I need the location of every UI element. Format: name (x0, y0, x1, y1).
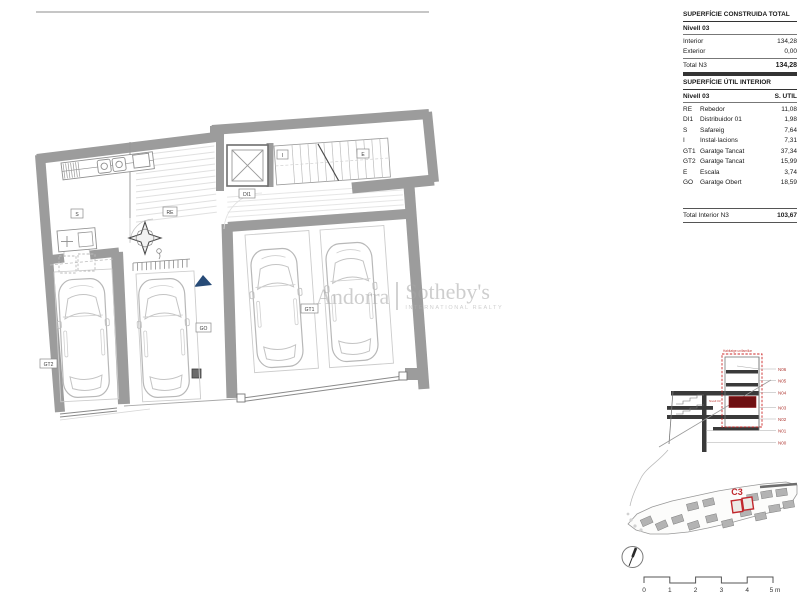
table-row: GO Garatge Obert 18,59 (683, 177, 797, 188)
row-interior-label: Interior (683, 37, 777, 46)
highlighted-floor-n3 (729, 397, 756, 408)
label-garatge-tancat-1: GT1 (305, 307, 315, 313)
table-row: E Escala 3,74 (683, 166, 797, 177)
scale-3: 3 (720, 587, 724, 594)
table2-title: SUPERFÍCIE ÚTIL INTERIOR (683, 78, 797, 90)
row-value: 37,34 (781, 147, 797, 156)
total-interior-label: Total Interior N3 (683, 212, 729, 219)
car-gt1-right (322, 241, 382, 362)
level-labels: N06 N05 N04 N03 N02 N01 N00 (778, 367, 787, 446)
laundry-fixtures (57, 228, 97, 273)
row-value: 3,74 (784, 168, 797, 177)
scale-bar: 0 1 2 3 4 5 m (642, 577, 780, 594)
row-name: Garatge Tancat (700, 157, 781, 166)
table2-level-header: Nivell 03 (683, 92, 709, 101)
car-gt2 (55, 278, 113, 399)
label-garatge-tancat-2: GT2 (44, 362, 54, 368)
terrain-contour (630, 450, 668, 506)
row-name: Garatge Obert (700, 178, 781, 187)
total-interior-block: Total Interior N3 103,67 (683, 208, 797, 223)
row-code: GT1 (683, 147, 700, 156)
row-value: 18,59 (781, 178, 797, 187)
table2-area-header: S. UTIL (775, 92, 797, 101)
row-exterior-value: 0,00 (784, 47, 797, 56)
table1-total-value: 134,28 (776, 61, 797, 70)
ramp-grate (133, 259, 190, 271)
summary-table-construida: SUPERFÍCIE CONSTRUIDA TOTAL Nivell 03 In… (683, 10, 797, 74)
table-row: GT2 Garatge Tancat 15,99 (683, 156, 797, 167)
level-n01: N01 (778, 429, 787, 434)
row-name: Rebedor (700, 105, 781, 114)
level-n05: N05 (778, 379, 787, 384)
scale-1: 1 (668, 587, 672, 594)
row-exterior-label: Exterior (683, 47, 784, 56)
table1-level-header: Nivell 03 (683, 24, 709, 33)
summary-table-util: SUPERFÍCIE ÚTIL INTERIOR Nivell 03 S. UT… (683, 74, 797, 187)
north-arrow-icon (622, 547, 643, 568)
floor-plan: S RE DI1 I E GT1 GT2 GO (37, 112, 434, 420)
label-rebedor: RE (167, 210, 175, 216)
table-row: I Instal·lacions 7,31 (683, 135, 797, 146)
row-name: Garatge Tancat (700, 147, 781, 156)
section-diagram: Habitatge unifamiliar Nivell 03 N06 N05 … (630, 349, 787, 506)
level-n06: N06 (778, 367, 787, 372)
row-code: E (683, 168, 700, 177)
level-n00: N00 (778, 441, 787, 446)
scale-5m: 5 m (770, 587, 781, 594)
staircase (274, 138, 390, 185)
row-code: I (683, 136, 700, 145)
entry-arrow-icon (194, 275, 212, 287)
site-unit-label: C3 (731, 487, 743, 497)
scale-labels: 0 1 2 3 4 5 m (642, 587, 780, 594)
row-name: Escala (700, 168, 784, 177)
row-code: S (683, 126, 700, 135)
scale-2: 2 (694, 587, 698, 594)
total-interior-value: 103,67 (777, 212, 797, 219)
scale-4: 4 (745, 587, 749, 594)
row-code: GT2 (683, 157, 700, 166)
drawing-canvas: S RE DI1 I E GT1 GT2 GO (0, 0, 800, 600)
label-installacions: I (282, 153, 283, 159)
row-value: 7,31 (784, 136, 797, 145)
car-gt1-left (247, 247, 307, 368)
plan-sheet: S RE DI1 I E GT1 GT2 GO (0, 0, 800, 600)
row-name: Safareig (700, 126, 784, 135)
table-row: RE Rebedor 11,08 (683, 103, 797, 114)
row-code: RE (683, 105, 700, 114)
level-n02: N02 (778, 417, 787, 422)
table1-title: SUPERFÍCIE CONSTRUIDA TOTAL (683, 10, 797, 22)
row-interior-value: 134,28 (777, 37, 797, 46)
label-garatge-obert: GO (200, 326, 208, 332)
car-go (135, 278, 193, 399)
row-name: Distribuidor 01 (700, 115, 784, 124)
row-value: 11,08 (781, 105, 797, 114)
shaft-x-symbol (227, 145, 268, 186)
section-floor-label: Nivell 03 (709, 399, 721, 403)
section-unit-label: Habitatge unifamiliar (723, 349, 753, 353)
table-row: Exterior 0,00 (683, 46, 797, 57)
row-code: GO (683, 178, 700, 187)
row-name: Instal·lacions (700, 136, 784, 145)
table-row: S Safareig 7,64 (683, 124, 797, 135)
row-code: DI1 (683, 115, 700, 124)
plant-symbol (129, 222, 161, 259)
table-row: GT1 Garatge Tancat 37,34 (683, 145, 797, 156)
table-row: DI1 Distribuidor 01 1,98 (683, 114, 797, 125)
scale-0: 0 (642, 587, 646, 594)
table1-total-label: Total N3 (683, 61, 707, 70)
table1-total-row: Total N3 134,28 (683, 58, 797, 74)
row-value: 1,98 (784, 115, 797, 124)
site-plan: C3 (627, 482, 797, 534)
label-distribuidor: DI1 (243, 192, 251, 198)
row-value: 7,64 (784, 126, 797, 135)
level-n03: N03 (778, 406, 787, 411)
level-n04: N04 (778, 391, 787, 396)
row-value: 15,99 (781, 157, 797, 166)
table-row: Interior 134,28 (683, 35, 797, 46)
